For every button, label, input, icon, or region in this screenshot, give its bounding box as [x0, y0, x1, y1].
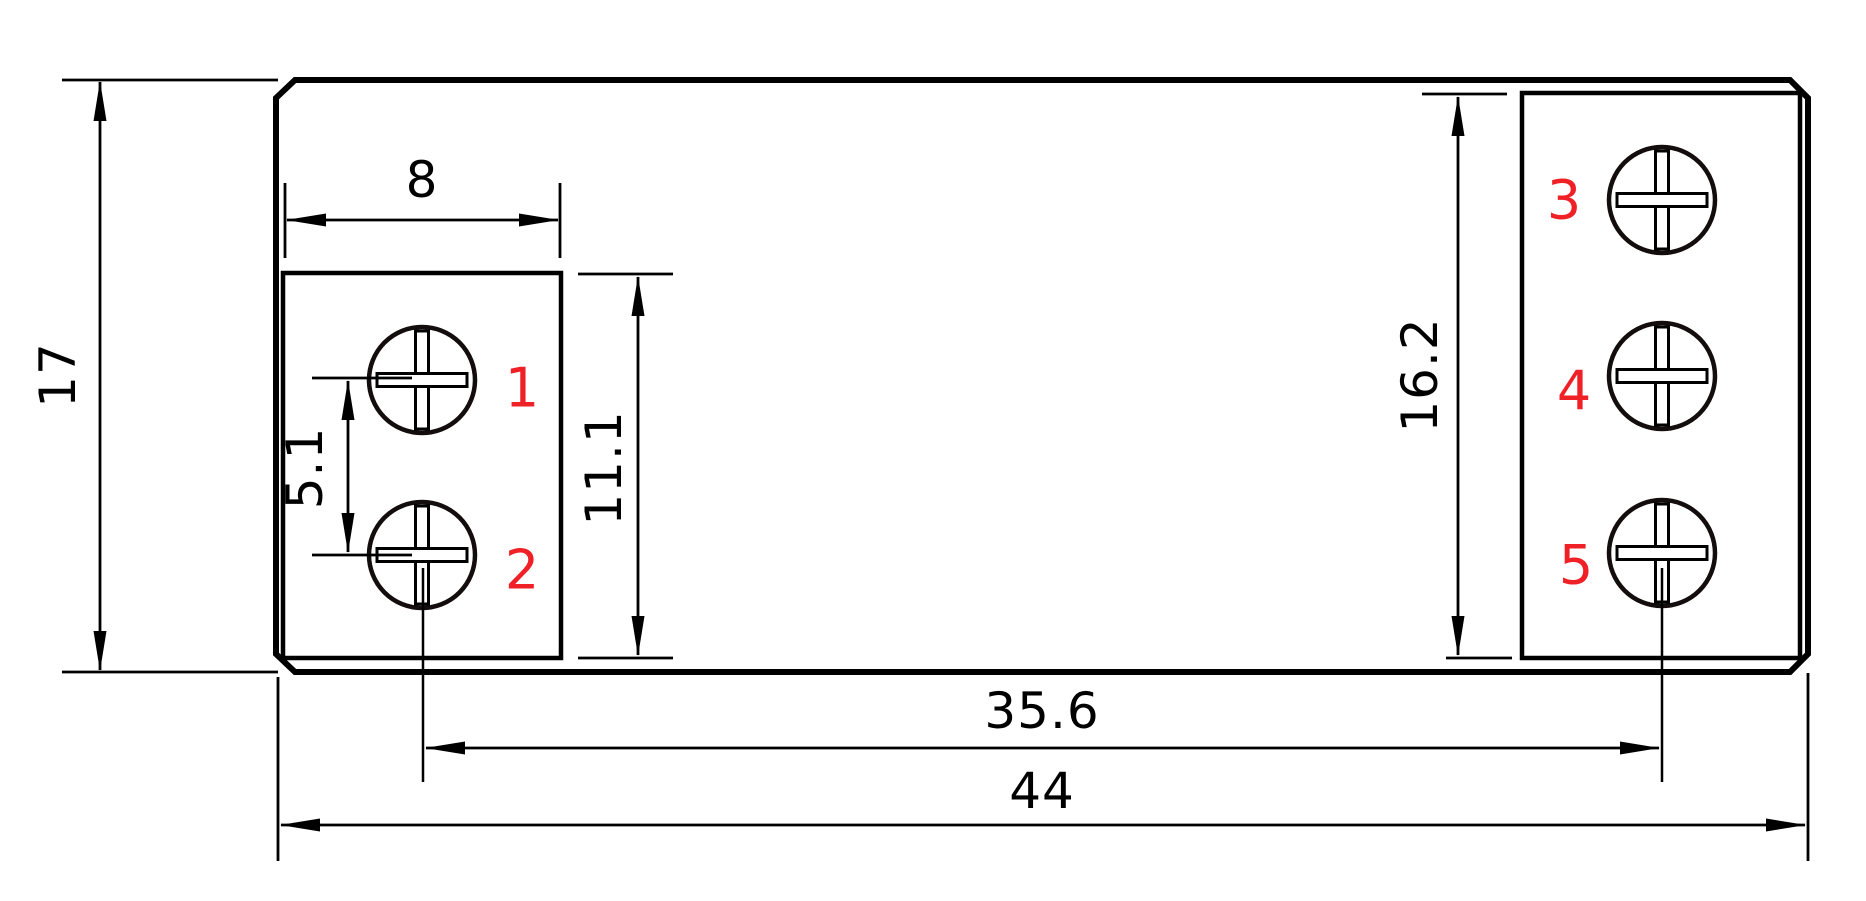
dimension-label-11-1: 11.1: [575, 410, 633, 525]
dimension-label-5-1: 5.1: [276, 427, 334, 510]
screw-slot-horizontal: [1617, 370, 1707, 383]
dimension-left-block-width: 8: [285, 151, 560, 258]
terminal-number-4: 4: [1557, 360, 1591, 423]
terminal-number-5: 5: [1559, 534, 1593, 597]
screw-terminal-4: [1609, 323, 1715, 429]
dimension-total-height: 17: [29, 80, 278, 672]
terminal-number-3: 3: [1547, 169, 1581, 232]
dimension-label-35-6: 35.6: [984, 682, 1099, 740]
screw-slot-horizontal: [1617, 547, 1707, 560]
dimension-label-16-2: 16.2: [1391, 317, 1449, 432]
screw-slot-horizontal: [1617, 194, 1707, 207]
dimension-terminal-pitch: 5.1: [276, 378, 412, 555]
dimension-right-block-height: 16.2: [1391, 94, 1512, 658]
dimension-drawing-svg: 1 2 3 4 5 17 8 5.1 11.1 16.2: [0, 0, 1866, 901]
terminal-number-2: 2: [505, 539, 539, 602]
terminal-number-1: 1: [505, 357, 539, 420]
drawing-canvas: 1 2 3 4 5 17 8 5.1 11.1 16.2: [0, 0, 1866, 901]
screw-terminal-3: [1609, 147, 1715, 253]
dimension-label-17: 17: [29, 342, 87, 408]
screw-terminal-1: [369, 327, 475, 433]
dimension-label-44: 44: [1009, 762, 1075, 820]
dimension-left-block-height: 11.1: [575, 274, 673, 658]
dimension-label-8: 8: [406, 151, 439, 209]
screw-slot-horizontal: [377, 374, 467, 387]
